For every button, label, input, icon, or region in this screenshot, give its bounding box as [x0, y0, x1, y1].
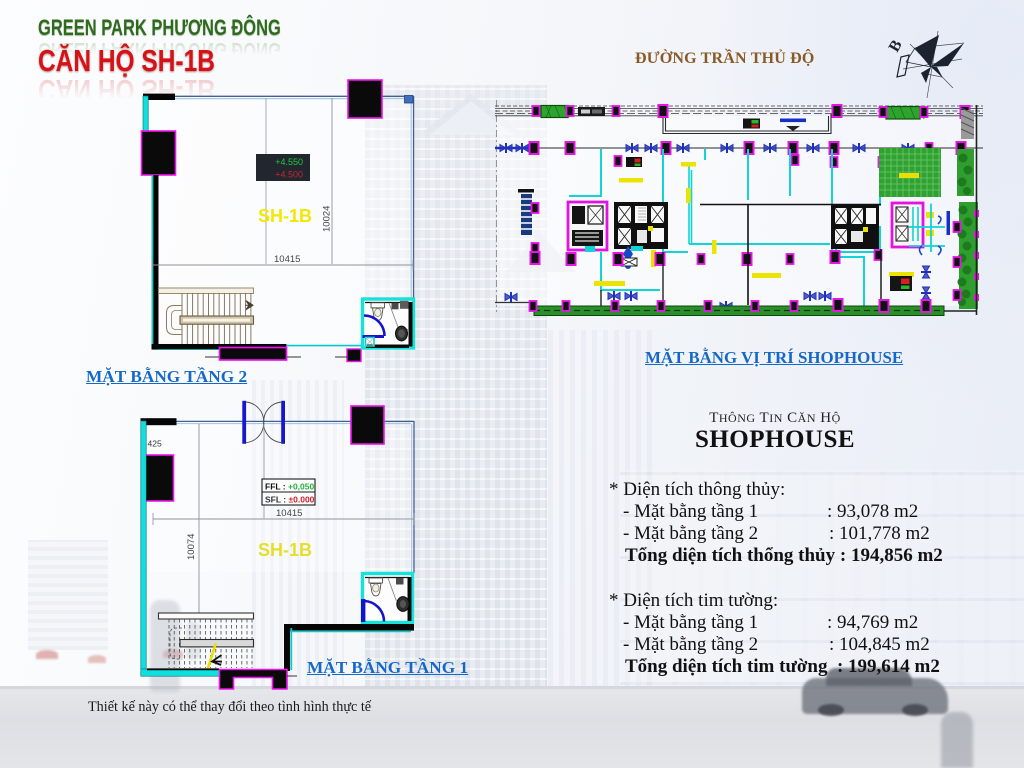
svg-text:+4.550: +4.550 [275, 157, 303, 167]
svg-text:10415: 10415 [274, 254, 300, 265]
svg-text:10415: 10415 [276, 508, 302, 519]
svg-text:10024: 10024 [322, 206, 333, 232]
svg-text:FFL : +0,050: FFL : +0,050 [265, 482, 314, 492]
svg-text:B: B [886, 37, 906, 55]
svg-text:SH-1B: SH-1B [258, 540, 312, 560]
svg-text:10074: 10074 [186, 534, 197, 560]
svg-text:+4.500: +4.500 [275, 170, 303, 180]
svg-text:425: 425 [148, 439, 162, 449]
svg-text:SH-1B: SH-1B [258, 206, 312, 226]
svg-text:SFL : ±0.000: SFL : ±0.000 [265, 495, 315, 505]
